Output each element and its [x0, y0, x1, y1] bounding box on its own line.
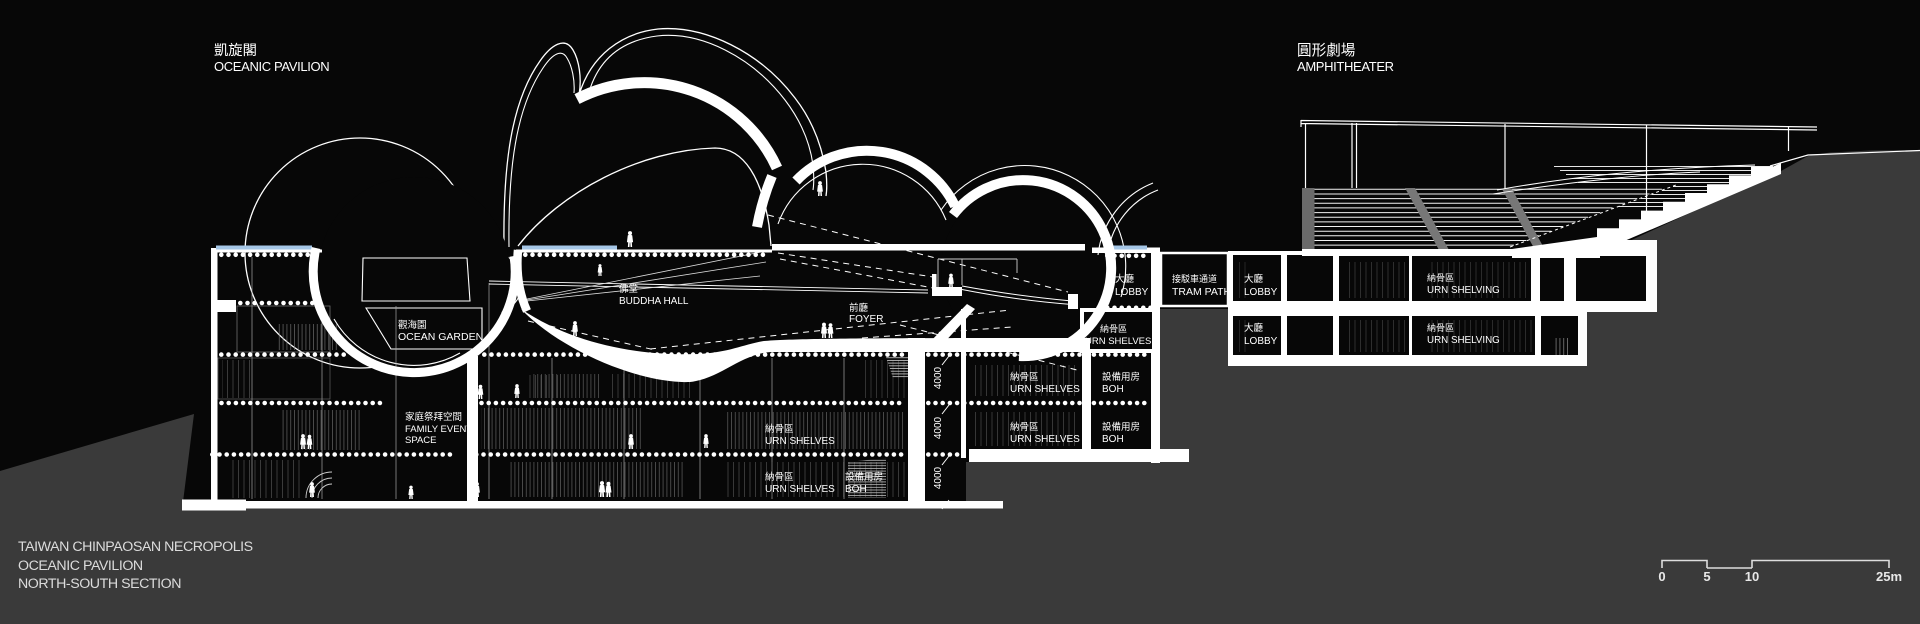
svg-text:URN SHELVES: URN SHELVES [765, 484, 835, 495]
svg-text:圓形劇場: 圓形劇場 [1297, 42, 1356, 59]
svg-text:URN SHELVES: URN SHELVES [765, 436, 835, 447]
svg-text:OCEANIC PAVILION: OCEANIC PAVILION [18, 558, 143, 574]
svg-text:設備用房: 設備用房 [1102, 371, 1140, 383]
svg-text:URN SHELVES: URN SHELVES [1010, 384, 1080, 395]
svg-text:10: 10 [1745, 569, 1759, 584]
svg-text:URN SHELVING: URN SHELVING [1427, 285, 1500, 296]
svg-text:大廳: 大廳 [1244, 322, 1264, 334]
svg-text:大廳: 大廳 [1115, 273, 1135, 285]
svg-text:納骨區: 納骨區 [1427, 322, 1454, 333]
svg-text:納骨區: 納骨區 [765, 471, 794, 483]
svg-text:BOH: BOH [1102, 434, 1124, 445]
svg-text:設備用房: 設備用房 [845, 471, 883, 483]
svg-text:URN SHELVES: URN SHELVES [1010, 434, 1080, 445]
svg-text:納骨區: 納骨區 [1100, 323, 1127, 334]
svg-text:NORTH-SOUTH SECTION: NORTH-SOUTH SECTION [18, 576, 181, 592]
svg-text:設備用房: 設備用房 [1102, 421, 1140, 433]
svg-text:LOBBY: LOBBY [1244, 336, 1278, 347]
svg-text:0: 0 [1658, 569, 1665, 584]
svg-text:AMPHITHEATER: AMPHITHEATER [1297, 59, 1394, 74]
svg-text:FOYER: FOYER [849, 314, 883, 325]
svg-text:SPACE: SPACE [405, 435, 437, 446]
svg-text:納骨區: 納骨區 [1427, 272, 1454, 283]
svg-text:前廳: 前廳 [849, 302, 869, 314]
svg-text:OCEAN GARDEN: OCEAN GARDEN [398, 331, 483, 343]
svg-text:佛堂: 佛堂 [619, 283, 638, 295]
svg-text:家庭祭拜空間: 家庭祭拜空間 [405, 411, 462, 423]
svg-text:25m: 25m [1876, 569, 1902, 584]
svg-text:接駁車通道: 接駁車通道 [1172, 273, 1217, 284]
svg-text:納骨區: 納骨區 [765, 423, 794, 435]
svg-text:大廳: 大廳 [1244, 273, 1264, 285]
svg-text:5: 5 [1703, 569, 1710, 584]
svg-text:OCEANIC PAVILION: OCEANIC PAVILION [214, 59, 329, 74]
svg-text:LOBBY: LOBBY [1115, 287, 1149, 298]
svg-text:4000: 4000 [933, 416, 944, 439]
svg-text:URN SHELVING: URN SHELVING [1427, 335, 1500, 346]
svg-text:4000: 4000 [933, 466, 944, 489]
svg-text:FAMILY EVENT: FAMILY EVENT [405, 424, 472, 435]
svg-text:4000: 4000 [933, 366, 944, 389]
svg-text:納骨區: 納骨區 [1010, 371, 1039, 383]
svg-text:凱旋閣: 凱旋閣 [214, 42, 257, 59]
svg-text:BOH: BOH [845, 484, 867, 495]
svg-text:BOH: BOH [1102, 384, 1124, 395]
svg-text:TAIWAN CHINPAOSAN NECROPOLIS: TAIWAN CHINPAOSAN NECROPOLIS [18, 539, 253, 555]
svg-text:TRAM PATH: TRAM PATH [1172, 286, 1231, 298]
svg-text:觀海園: 觀海園 [398, 319, 427, 331]
svg-text:納骨區: 納骨區 [1010, 421, 1039, 433]
svg-text:BUDDHA HALL: BUDDHA HALL [619, 296, 689, 307]
svg-text:URN SHELVES: URN SHELVES [1085, 336, 1151, 347]
svg-text:LOBBY: LOBBY [1244, 287, 1278, 298]
